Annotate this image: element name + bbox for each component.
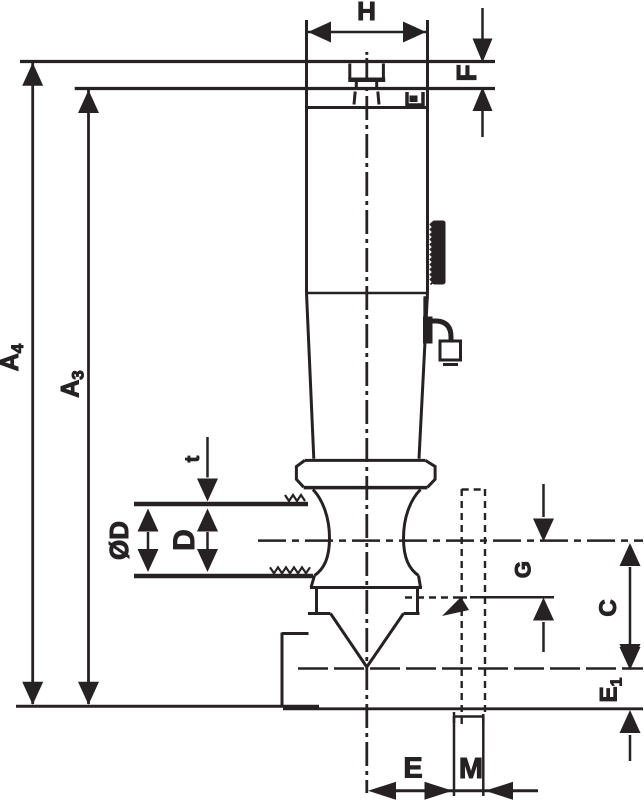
svg-text:E: E — [403, 753, 422, 785]
svg-text:ØD: ØD — [104, 521, 134, 560]
svg-text:G: G — [511, 561, 536, 578]
svg-text:F: F — [451, 64, 482, 81]
svg-text:A3: A3 — [57, 370, 88, 398]
svg-text:M: M — [459, 753, 483, 785]
svg-text:H: H — [357, 0, 376, 26]
svg-text:A4: A4 — [0, 343, 27, 371]
svg-text:C: C — [595, 599, 622, 616]
svg-text:t: t — [182, 455, 204, 462]
svg-text:D: D — [168, 529, 201, 551]
svg-text:E1: E1 — [596, 677, 626, 702]
